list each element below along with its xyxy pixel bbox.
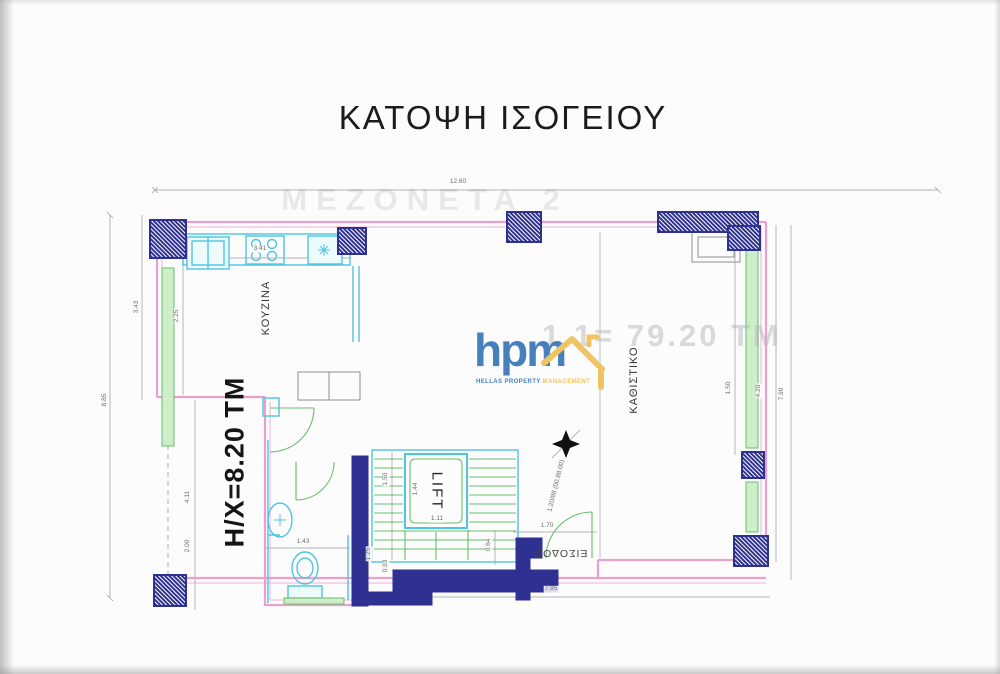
column	[150, 220, 186, 258]
wc-fixtures	[268, 440, 348, 604]
hpm-logo: hpm HELLAS PROPERTY MANAGEMENT	[468, 323, 628, 397]
dimension-label: 1.44	[413, 482, 420, 497]
dimension-label: 0.64	[486, 538, 493, 553]
dimension-label: 8.85	[102, 393, 109, 408]
bottom-wall	[393, 570, 558, 592]
room-label-lift: LIFT	[429, 472, 446, 511]
watermark-project-name: ΜΕΖΟΝΕΤΑ 2	[281, 182, 569, 218]
dimension-label: 4.11	[185, 490, 192, 504]
dimension-label: 1.50	[383, 472, 390, 487]
page-title: ΚΑΤΟΨΗ ΙΣΟΓΕΙΟΥ	[339, 99, 668, 137]
dimension-label: 1.25	[366, 547, 373, 562]
dimension-label: 1.11	[430, 516, 444, 523]
column	[734, 536, 768, 566]
dimension-label: 2.25	[174, 309, 181, 324]
toilet	[292, 552, 318, 584]
dimension-label: 1.50	[726, 381, 733, 396]
logo-caption-word3: MANAGEMENT	[543, 379, 591, 385]
room-label-living: ΚΑΘΙΣΤΙΚΟ	[628, 346, 640, 413]
dimension-label: 7.95	[544, 586, 559, 593]
dimension-label: 0.93	[383, 559, 390, 574]
room-label-covered-area: H/X=8.20 TM	[220, 377, 251, 548]
column	[338, 228, 366, 254]
dimension-label: 4.20	[756, 384, 763, 399]
room-label-kitchen: ΚΟΥΖΙΝΑ	[260, 281, 272, 336]
logo-caption: HELLAS PROPERTY MANAGEMENT	[476, 379, 590, 385]
room-label-entrance: ΕΙΣΟΔΟΣ	[535, 547, 588, 559]
dimension-label: 2.00	[185, 539, 192, 554]
dimension-label: 1.43	[296, 539, 311, 546]
logo-caption-word2: PROPERTY	[504, 379, 540, 385]
house-icon	[468, 323, 628, 397]
bottom-wall-step	[352, 592, 432, 605]
stair-wall	[352, 456, 368, 606]
dimension-label: 12.60	[449, 179, 467, 186]
dimension-label: 1.70	[540, 523, 555, 530]
window-left	[162, 268, 174, 446]
toilet-base	[288, 586, 322, 598]
floor-plan-page: ΜΕΖΟΝΕΤΑ 2 1.1= 79.20 ΤΜ ΚΑΤΟΨΗ ΙΣΟΓΕΙΟΥ…	[0, 0, 1000, 674]
window-right-lower	[746, 482, 758, 532]
dimension-label: 3.43	[134, 300, 141, 315]
north-arrow-icon	[552, 430, 580, 458]
logo-caption-word1: HELLAS	[476, 379, 502, 385]
dimension-label: 3.41	[253, 246, 268, 253]
column	[728, 226, 760, 250]
column	[154, 575, 186, 606]
dimension-label: 7.90	[779, 387, 786, 402]
column	[742, 452, 764, 478]
